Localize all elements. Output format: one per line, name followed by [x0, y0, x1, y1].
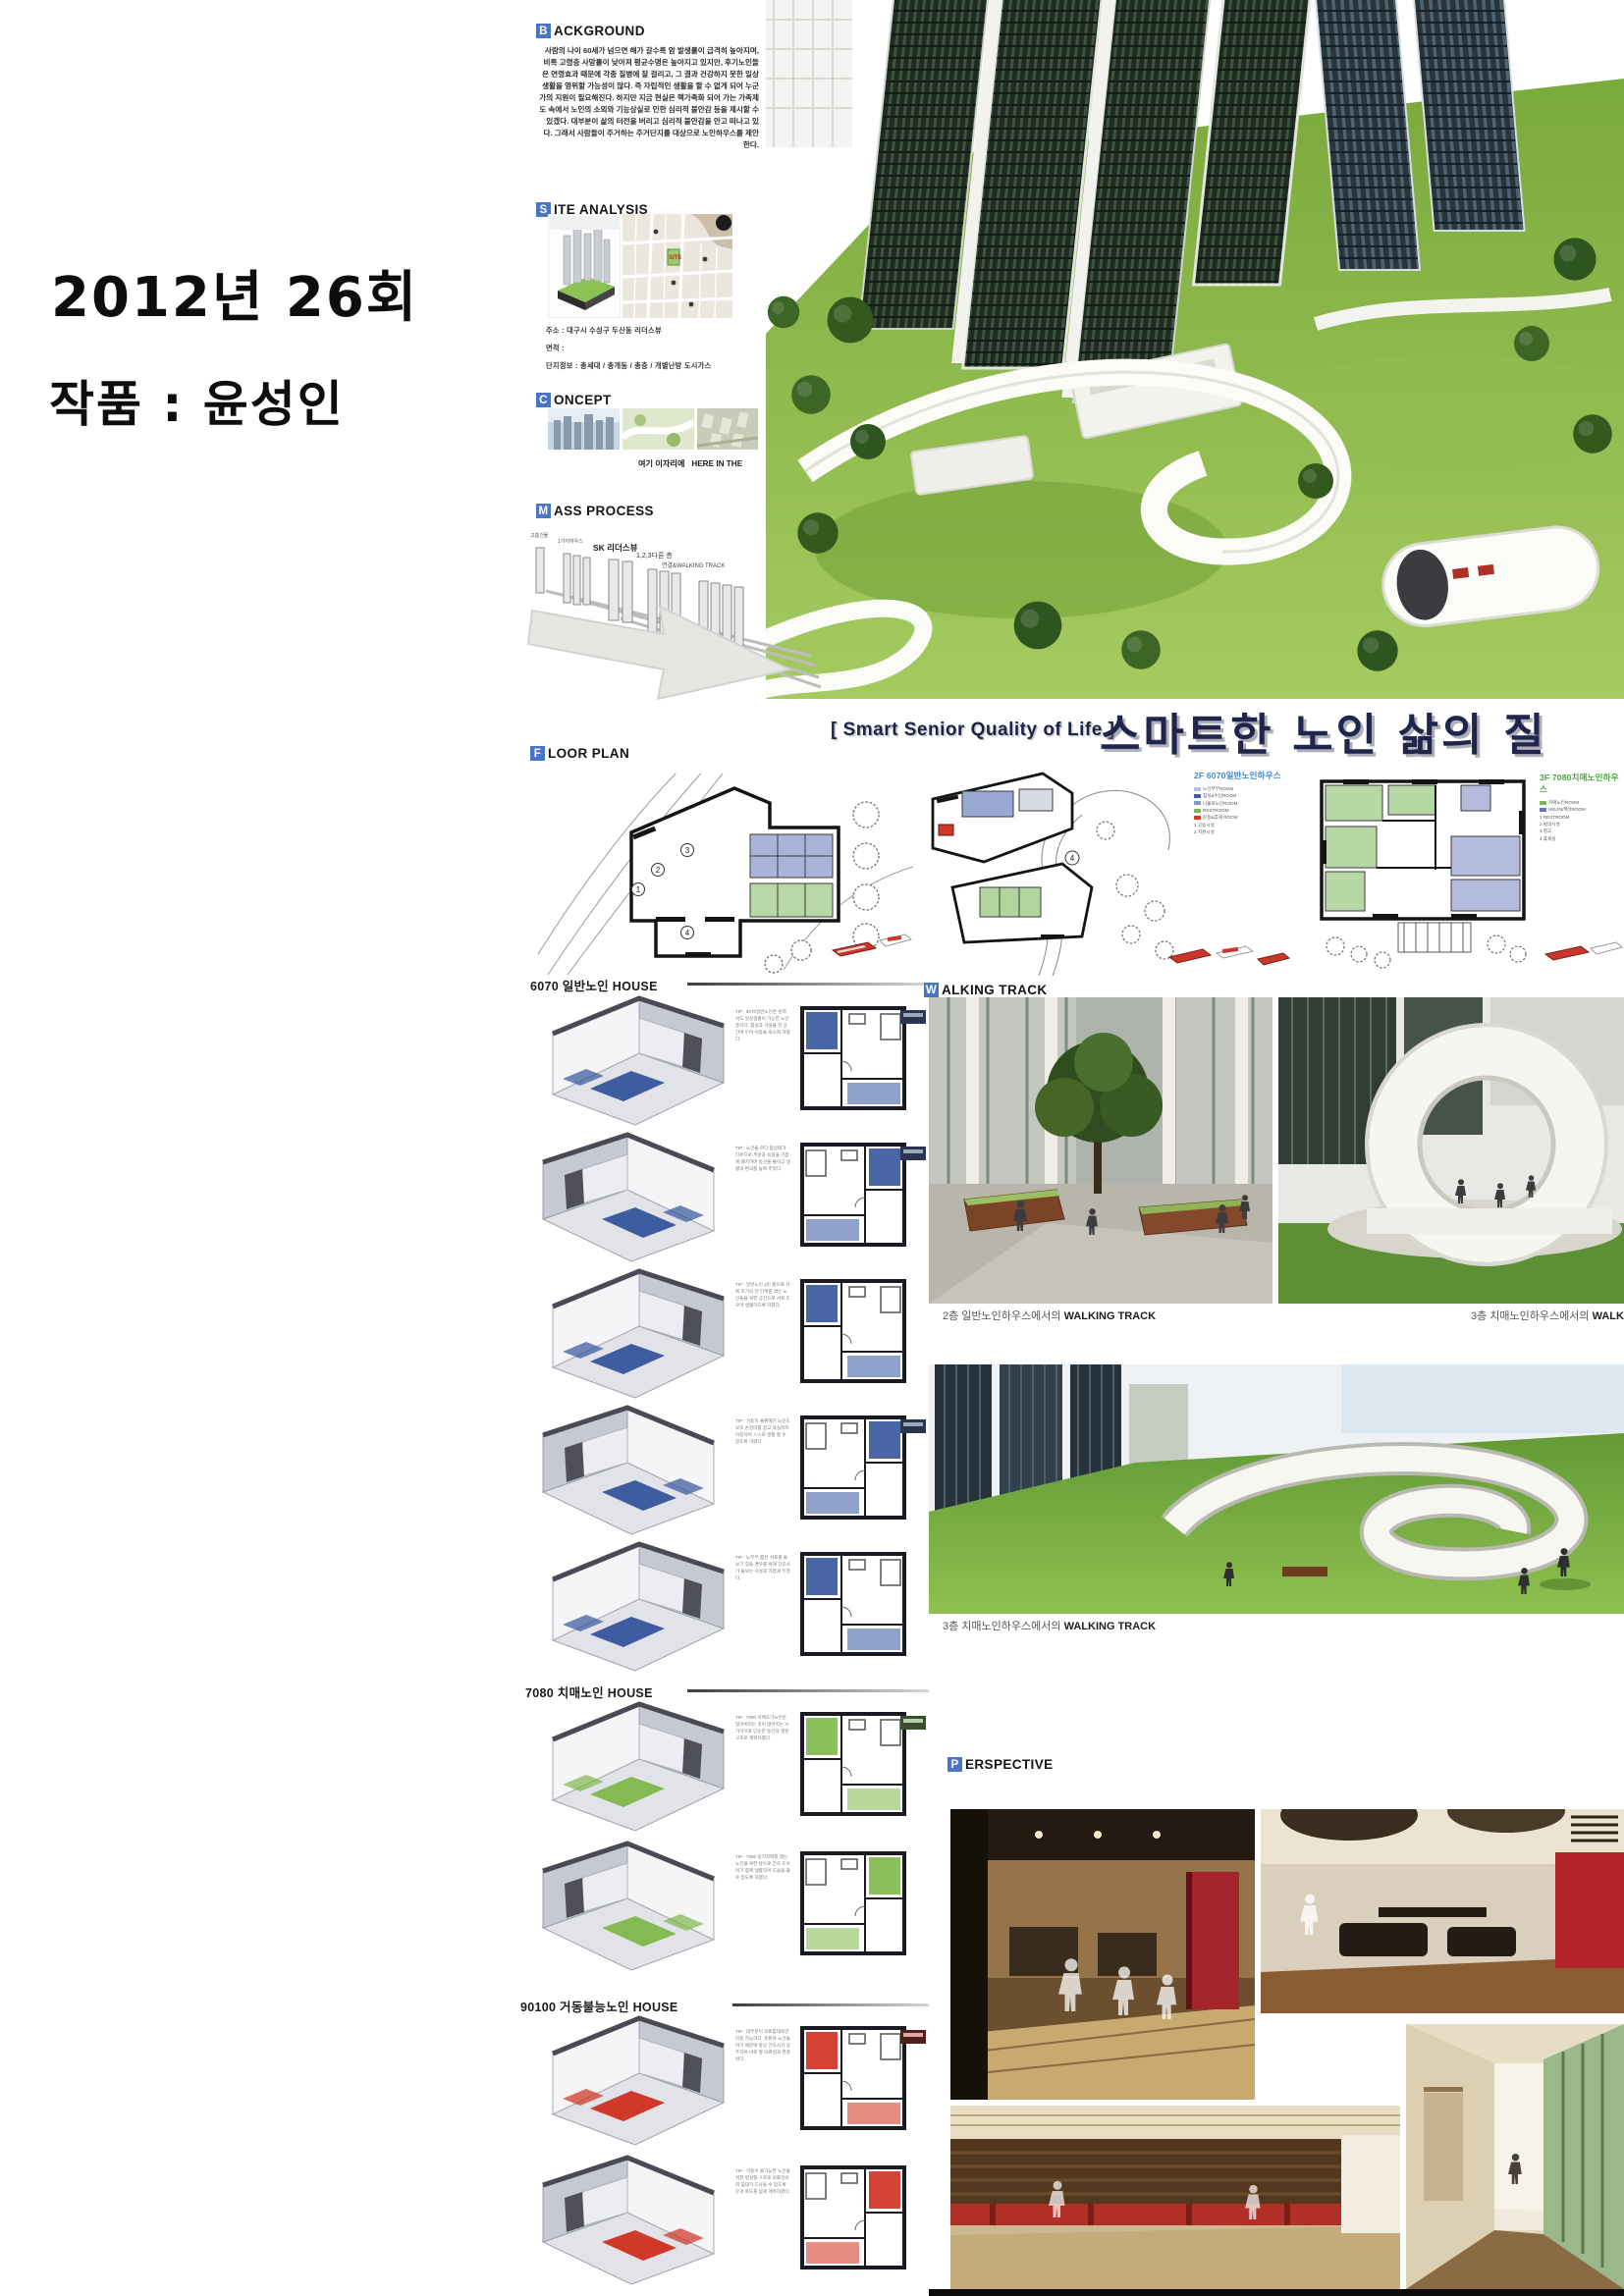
unit-tip-text: TIP : 6070일반노인은 혼자서도 일상생활이 가능한 노인층이다. 침실… — [735, 1008, 790, 1043]
section-header-perspective: P ERSPECTIVE — [947, 1757, 1054, 1772]
unit-axon-render — [535, 2154, 731, 2286]
unit-axon-render — [535, 1840, 731, 1972]
unit-axon-render — [535, 1267, 731, 1400]
section-label-7080: 7080 치매노인 HOUSE — [525, 1682, 653, 1701]
unit-axon-render — [535, 2014, 731, 2147]
unit-plan-diagram — [794, 1847, 912, 1960]
plan3-legend: 치매노인ROOM HELP&케어ROOM 1 RESTROOM 2 탈의시설 3… — [1540, 799, 1624, 842]
plan2-number-4: 4 — [1070, 854, 1075, 863]
site-info-lines: 주소 : 대구시 수성구 두산동 리더스뷰 면적 : 단지정보 : 총세대 / … — [546, 326, 762, 379]
site-complex-line: 단지정보 : 총세대 / 총개동 / 총층 / 개별난방 도시가스 — [546, 361, 762, 371]
unit-plan-diagram — [794, 1139, 912, 1252]
plan1-number-4: 4 — [685, 929, 690, 937]
walking-track-courtyard-render — [929, 997, 1272, 1304]
floor-plan-3f — [1314, 772, 1532, 976]
unit-tip-text: TIP : 노부부 室은 서로를 돌보기 힘들 경우를 위해 간호사가 돌보는 … — [735, 1554, 790, 1581]
unit-plan-diagram — [794, 2162, 912, 2274]
header-initial-box: M — [536, 504, 551, 518]
unit-thumbnails-red-2f — [1164, 937, 1291, 973]
competition-title: 2012년 26회 — [51, 253, 418, 333]
section-header-background: B ACKGROUND — [536, 24, 645, 38]
unit-detail-thumb — [900, 1716, 926, 1730]
unit-axon-render — [535, 1131, 731, 1263]
concept-caption-en: HERE IN THE — [691, 459, 742, 468]
section-divider-90100 — [732, 2003, 929, 2006]
concept-image-city — [548, 408, 620, 450]
perspective-interior-lounge-dark — [950, 1809, 1255, 2100]
concept-caption-kr: 여기 이자리에 — [638, 459, 684, 468]
background-city — [766, 0, 852, 147]
main-title-english: [ Smart Senior Quality of Life ] — [831, 720, 1114, 741]
mass-process-arrow — [526, 585, 801, 701]
plan3-label-block: 3F 7080치매노인하우스 치매노인ROOM HELP&케어ROOM 1 RE… — [1540, 772, 1624, 842]
unit-axon-render — [535, 1700, 731, 1833]
header-initial-box: W — [924, 983, 939, 997]
header-text: ERSPECTIVE — [965, 1757, 1054, 1772]
header-text: ASS PROCESS — [554, 504, 654, 518]
section-header-walking-track: W ALKING TRACK — [924, 983, 1048, 997]
unit-detail-thumb — [900, 1419, 926, 1433]
unit-plan-diagram — [794, 1548, 912, 1661]
unit-axon-render — [535, 994, 731, 1127]
map-north-badge — [716, 215, 731, 231]
plan1-number-3: 3 — [685, 846, 690, 855]
main-title-korean: 스마트한 노인 삶의 질 — [1100, 699, 1547, 763]
section-divider-7080 — [687, 1689, 929, 1692]
unit-tip-text: TIP : 거동이 불편해진 노인도 보조 손잡이를 잡고 욕실까지 이동하며 … — [735, 1417, 790, 1445]
site-model-image — [548, 214, 621, 318]
site-map-image: SITE — [623, 214, 732, 318]
unit-tip-text: TIP : 7080 치매초기노인은 잊어버리는 것이 많아지는 시기이므로 단… — [735, 1714, 790, 1741]
unit-tip-text: TIP : 대부분이 의료침대로만 이동 가능하다. 중환자 노인들이기 때문에… — [735, 2028, 790, 2063]
floor-plan-1f: 32 41 — [538, 774, 913, 976]
header-text: ACKGROUND — [554, 24, 645, 38]
plan3-label: 3F 7080치매노인하우스 — [1540, 772, 1624, 795]
plan2-label: 2F 6070일반노인하우스 — [1194, 770, 1292, 781]
unit-axon-render — [535, 1540, 731, 1673]
unit-tip-text: TIP : 노인들 마다 몸상태가 다르므로 주방과 욕실을 가깝게 배치하여 … — [735, 1145, 790, 1172]
unit-plan-diagram — [794, 1708, 912, 1821]
unit-plan-diagram — [794, 1412, 912, 1524]
plan2-legend: 노인부부ROOM 침실&수납ROOM 나홀로노인ROOM RESTROOM 운동… — [1194, 785, 1292, 835]
concept-image-aerial — [697, 408, 758, 450]
unit-thumbnails-red-3f — [1540, 933, 1624, 972]
unit-plan-diagram — [794, 1275, 912, 1388]
unit-detail-thumb — [900, 1010, 926, 1024]
section-header-mass-process: M ASS PROCESS — [536, 504, 654, 518]
plan1-number-1: 1 — [636, 885, 641, 894]
site-address-line: 주소 : 대구시 수성구 두산동 리더스뷰 — [546, 326, 762, 336]
red-door — [1192, 1872, 1239, 2009]
section-divider-6070 — [687, 983, 929, 986]
header-initial-box: B — [536, 24, 551, 38]
mass-step1-label: 고층건물 — [530, 532, 548, 539]
concept-image-masterplan — [623, 408, 694, 450]
red-bench-cushions — [950, 2204, 1400, 2225]
header-text: LOOR PLAN — [548, 746, 629, 761]
red-accent-wall — [1555, 1852, 1624, 1968]
background-paragraph: 사람의 나이 60세가 넘으면 해가 갈수록 암 발생률이 급격히 높아지며, … — [538, 45, 759, 151]
unit-plan-diagram — [794, 1002, 912, 1115]
header-initial-box: F — [530, 746, 545, 761]
plan2-label-block: 2F 6070일반노인하우스 노인부부ROOM 침실&수납ROOM 나홀로노인R… — [1194, 770, 1292, 835]
caption-walking-3f-clipped: 3층 치매노인하우스에서의 WALKING T — [1471, 1308, 1624, 1323]
site-area-line: 면적 : — [546, 344, 762, 353]
section-label-90100: 90100 거동불능노인 HOUSE — [520, 1997, 678, 2015]
header-text: ONCEPT — [554, 393, 612, 407]
section-header-concept: C ONCEPT — [536, 393, 612, 407]
floor-plan-2f: 4 — [923, 768, 1190, 976]
header-initial-box: P — [947, 1757, 962, 1772]
section-header-floor-plan: F LOOR PLAN — [530, 746, 629, 761]
unit-plan-diagram — [794, 2022, 912, 2135]
unit-tip-text: TIP : 7080 중기치매를 겪는 노인을 위한 방으로 간호 도우미가 함… — [735, 1853, 790, 1881]
plan1-number-2: 2 — [656, 866, 661, 875]
perspective-interior-lounge-wide — [950, 2106, 1400, 2289]
walking-track-lawn-render — [929, 1364, 1624, 1614]
section-label-6070: 6070 일반노인 HOUSE — [530, 976, 658, 994]
header-text: ALKING TRACK — [942, 983, 1048, 997]
bench — [1282, 1567, 1327, 1576]
unit-axon-render — [535, 1404, 731, 1536]
unit-detail-thumb — [900, 2030, 926, 2044]
poster-page: 2012년 26회 작품 : 윤성인 — [0, 0, 1624, 2296]
poster-bottom-strip — [929, 2289, 1624, 2296]
unit-tip-text: TIP : 일반노인 2인 룸으로 치매 초기의 전 단계를 겪는 노인들을 위… — [735, 1281, 790, 1308]
perspective-interior-living — [1261, 1809, 1624, 2013]
header-initial-box: C — [536, 393, 551, 407]
unit-detail-thumb — [900, 1147, 926, 1160]
hero-aerial-render — [766, 0, 1624, 699]
concept-caption: 여기 이자리에 HERE IN THE — [638, 457, 742, 469]
author-title: 작품 : 윤성인 — [49, 365, 345, 436]
walking-track-tube-render — [1278, 997, 1624, 1304]
caption-walking-3f: 3층 치매노인하우스에서의 WALKING TRACK — [943, 1618, 1156, 1633]
perspective-interior-corridor — [1406, 2024, 1624, 2289]
map-site-label: SITE — [669, 255, 681, 261]
caption-walking-2f: 2층 일반노인하우스에서의 WALKING TRACK — [943, 1308, 1156, 1323]
unit-tip-text: TIP : 거동이 불가능한 노인을 위한 병실형 구조로 의료장비와 침대가 … — [735, 2167, 790, 2195]
